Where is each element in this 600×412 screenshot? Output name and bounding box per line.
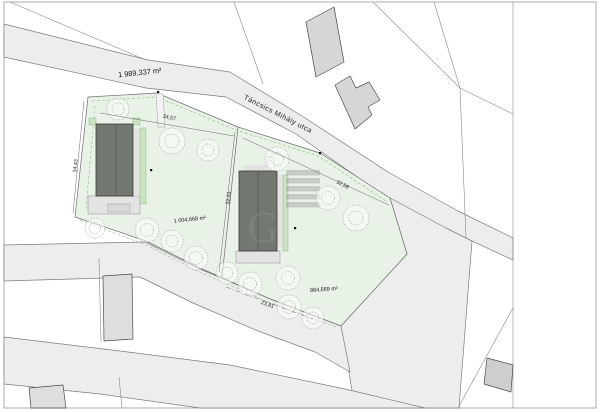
site-plan: G — [0, 0, 600, 412]
tree — [302, 307, 324, 329]
house-1-shed — [108, 204, 130, 212]
tree — [343, 205, 369, 231]
house-1-side-strip — [133, 128, 140, 196]
tree — [238, 272, 262, 296]
house-1-hedge-left — [89, 118, 96, 125]
tree — [159, 128, 185, 154]
building-southwest-tall — [103, 274, 133, 341]
house-2-terrace — [236, 251, 280, 263]
tree — [161, 230, 183, 252]
tree — [85, 218, 105, 238]
house-1-group — [88, 118, 146, 214]
house-1-roof — [96, 124, 133, 196]
tree — [107, 98, 129, 120]
tree — [184, 246, 208, 270]
tree — [265, 147, 289, 171]
tree — [276, 266, 300, 290]
tree — [135, 218, 159, 242]
tree — [197, 139, 219, 161]
watermark-letter: G — [247, 203, 279, 252]
building-southwest-small — [29, 385, 66, 408]
house-2-top-strip — [243, 165, 269, 171]
house-1-hedge-strip — [140, 128, 146, 204]
tree — [316, 186, 340, 210]
tree — [277, 295, 301, 319]
site-plan-canvas: G — [0, 0, 600, 412]
tree — [216, 262, 238, 284]
